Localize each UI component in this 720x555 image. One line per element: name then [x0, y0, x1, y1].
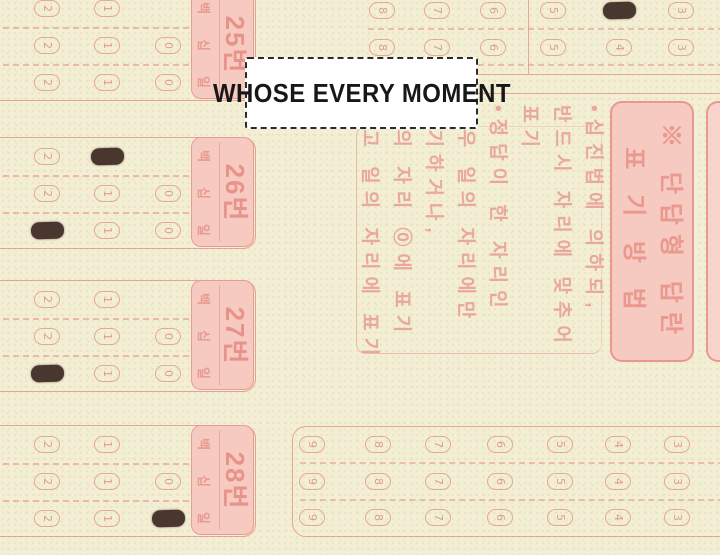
answer-bubble[interactable]: 0: [155, 365, 181, 382]
answer-bubble[interactable]: 7: [425, 436, 451, 453]
answer-block-26: 백십일26번221010: [0, 137, 256, 249]
row-divider: [0, 463, 189, 465]
bubble-digit: 1: [102, 370, 113, 377]
answer-bubble[interactable]: 1: [94, 436, 120, 453]
answer-mark[interactable]: [602, 1, 636, 19]
bubble-digit: 1: [102, 227, 113, 234]
bubble-digit: 3: [676, 7, 687, 14]
digit-place-label: 십: [193, 469, 217, 493]
answer-bubble[interactable]: 5: [540, 39, 566, 56]
bubble-digit: 2: [42, 296, 53, 303]
bubble-digit: 6: [495, 441, 506, 448]
bubble-digit: 6: [488, 7, 499, 14]
bubble-digit: 8: [373, 441, 384, 448]
digit-place-label: 십: [193, 324, 217, 348]
answer-bubble[interactable]: 1: [94, 185, 120, 202]
answer-bubble[interactable]: 6: [487, 436, 513, 453]
answer-bubble[interactable]: 6: [487, 509, 513, 526]
answer-bubble[interactable]: 8: [365, 509, 391, 526]
row-divider: [0, 64, 189, 66]
row-divider: [0, 500, 189, 502]
answer-bubble[interactable]: 4: [605, 473, 631, 490]
bubble-digit: 1: [102, 441, 113, 448]
bubble-digit: 1: [102, 42, 113, 49]
digit-place-label: 백: [193, 144, 217, 168]
bubble-digit: 2: [42, 478, 53, 485]
block-label: 백십일27번: [191, 280, 254, 390]
answer-bubble[interactable]: 0: [155, 222, 181, 239]
digit-place-label: 백: [193, 432, 217, 456]
answer-bubble[interactable]: 4: [606, 39, 632, 56]
bubble-digit: 8: [373, 478, 384, 485]
answer-bubble[interactable]: 2: [34, 510, 60, 527]
bubble-digit: 0: [163, 333, 174, 340]
answer-bubble[interactable]: 2: [34, 148, 60, 165]
answer-block-27: 백십일27번2121010: [0, 280, 256, 392]
answer-block-28: 백십일28번2121021: [0, 425, 256, 537]
answer-mark[interactable]: [30, 221, 64, 239]
bubble-digit: 4: [613, 514, 624, 521]
answer-bubble[interactable]: 2: [34, 291, 60, 308]
row-divider: [0, 27, 189, 29]
answer-bubble[interactable]: 1: [94, 0, 120, 17]
answer-bubble[interactable]: 5: [547, 473, 573, 490]
caption-box: WHOSE EVERY MOMENT: [245, 57, 478, 129]
bubble-digit: 1: [102, 296, 113, 303]
answer-bubble[interactable]: 4: [605, 509, 631, 526]
answer-bubble[interactable]: 8: [369, 2, 395, 19]
bubble-digit: 9: [307, 441, 318, 448]
row-divider: [0, 318, 189, 320]
bubble-digit: 2: [42, 153, 53, 160]
bubble-digit: 7: [433, 441, 444, 448]
answer-bubble[interactable]: 9: [299, 436, 325, 453]
answer-bubble[interactable]: 9: [299, 473, 325, 490]
row-divider: [0, 355, 189, 357]
answer-bubble[interactable]: 1: [94, 74, 120, 91]
digit-place-label: 일: [193, 218, 217, 242]
bubble-digit: 0: [163, 478, 174, 485]
bubble-digit: 9: [307, 514, 318, 521]
question-number-label: 27번: [220, 284, 254, 388]
answer-bubble[interactable]: 8: [365, 436, 391, 453]
answer-bubble[interactable]: 1: [94, 328, 120, 345]
answer-bubble[interactable]: 6: [480, 39, 506, 56]
digit-place-label: 십: [193, 181, 217, 205]
answer-bubble[interactable]: 3: [668, 2, 694, 19]
bubble-digit: 7: [433, 478, 444, 485]
bubble-digit: 3: [676, 44, 687, 51]
bubble-digit: 4: [613, 478, 624, 485]
answer-bubble[interactable]: 1: [94, 510, 120, 527]
block-label: 백십일26번: [191, 137, 254, 247]
bubble-digit: 5: [555, 478, 566, 485]
answer-bubble[interactable]: 2: [34, 185, 60, 202]
digit-place-label: 백: [193, 0, 217, 20]
question-number-label: 28번: [220, 429, 254, 533]
bottom-grid-row-divider: [300, 462, 720, 464]
answer-bubble[interactable]: 1: [94, 37, 120, 54]
bubble-digit: 0: [163, 190, 174, 197]
block-label: 백십일28번: [191, 425, 254, 535]
answer-bubble[interactable]: 2: [34, 473, 60, 490]
answer-bubble[interactable]: 5: [547, 436, 573, 453]
bubble-digit: 1: [102, 5, 113, 12]
caption-text: WHOSE EVERY MOMENT: [213, 78, 511, 109]
bubble-digit: 5: [548, 7, 559, 14]
row-divider: [0, 175, 189, 177]
answer-bubble[interactable]: 2: [34, 0, 60, 17]
answer-bubble[interactable]: 0: [155, 74, 181, 91]
bubble-digit: 5: [555, 514, 566, 521]
bubble-digit: 4: [614, 44, 625, 51]
question-number-label: 26번: [220, 141, 254, 245]
top-grid-row-divider: [368, 28, 720, 30]
answer-bubble[interactable]: 3: [664, 473, 690, 490]
bubble-digit: 5: [555, 441, 566, 448]
bubble-digit: 0: [163, 227, 174, 234]
answer-bubble[interactable]: 8: [365, 473, 391, 490]
bubble-digit: 8: [377, 7, 388, 14]
answer-bubble[interactable]: 1: [94, 365, 120, 382]
answer-bubble[interactable]: 0: [155, 37, 181, 54]
bubble-digit: 2: [42, 79, 53, 86]
answer-bubble[interactable]: 6: [480, 2, 506, 19]
answer-bubble[interactable]: 4: [605, 436, 631, 453]
bubble-digit: 7: [432, 44, 443, 51]
answer-bubble[interactable]: 0: [155, 328, 181, 345]
digit-place-label: 일: [193, 506, 217, 530]
answer-mark[interactable]: [90, 147, 124, 165]
answer-bubble[interactable]: 3: [664, 509, 690, 526]
bubble-digit: 2: [42, 441, 53, 448]
answer-bubble[interactable]: 0: [155, 473, 181, 490]
answer-bubble[interactable]: 5: [540, 2, 566, 19]
bubble-digit: 1: [102, 333, 113, 340]
answer-bubble[interactable]: 2: [34, 328, 60, 345]
answer-mark[interactable]: [30, 364, 64, 382]
bubble-digit: 1: [102, 190, 113, 197]
bubble-digit: 0: [163, 79, 174, 86]
bubble-digit: 9: [307, 478, 318, 485]
bubble-digit: 2: [42, 515, 53, 522]
top-grid-column-divider: [528, 0, 529, 74]
bubble-digit: 1: [102, 478, 113, 485]
marking-instructions-text: •십진법에 의하되, 반드시 자리에 맞추어 표기 •정답이 한 자리인 경우 …: [353, 105, 609, 355]
bubble-digit: 1: [102, 79, 113, 86]
answer-bubble[interactable]: 3: [668, 39, 694, 56]
bubble-digit: 8: [377, 44, 388, 51]
bottom-grid-row-divider: [300, 499, 720, 501]
bubble-digit: 1: [102, 515, 113, 522]
bubble-digit: 3: [672, 514, 683, 521]
answer-bubble[interactable]: 1: [94, 291, 120, 308]
bubble-digit: 7: [432, 7, 443, 14]
answer-mark[interactable]: [151, 509, 185, 527]
answer-bubble[interactable]: 8: [369, 39, 395, 56]
answer-bubble[interactable]: 7: [424, 39, 450, 56]
bubble-digit: 3: [672, 478, 683, 485]
bubble-digit: 6: [495, 478, 506, 485]
answer-bubble[interactable]: 7: [425, 473, 451, 490]
answer-bubble[interactable]: 1: [94, 473, 120, 490]
omr-answer-sheet: 백십일25번21210210백십일26번221010백십일27번2121010백…: [0, 0, 720, 555]
answer-bubble[interactable]: 7: [425, 509, 451, 526]
digit-place-label: 일: [193, 361, 217, 385]
bubble-digit: 0: [163, 42, 174, 49]
partial-guide-box: [706, 101, 720, 362]
bubble-digit: 5: [548, 44, 559, 51]
marking-guide-title-text: ※ 단답형 답란 표 기 방 법: [615, 113, 689, 353]
bubble-digit: 2: [42, 5, 53, 12]
bubble-digit: 2: [42, 190, 53, 197]
bubble-digit: 2: [42, 333, 53, 340]
bubble-digit: 3: [672, 441, 683, 448]
answer-bubble[interactable]: 2: [34, 37, 60, 54]
digit-place-label: 백: [193, 287, 217, 311]
answer-bubble[interactable]: 3: [664, 436, 690, 453]
bubble-digit: 0: [163, 370, 174, 377]
answer-bubble[interactable]: 6: [487, 473, 513, 490]
answer-bubble[interactable]: 9: [299, 509, 325, 526]
answer-bubble[interactable]: 1: [94, 222, 120, 239]
answer-bubble[interactable]: 5: [547, 509, 573, 526]
bubble-digit: 6: [495, 514, 506, 521]
bubble-digit: 6: [488, 44, 499, 51]
answer-bubble[interactable]: 0: [155, 185, 181, 202]
digit-place-label: 십: [193, 33, 217, 57]
row-divider: [0, 212, 189, 214]
bubble-digit: 7: [433, 514, 444, 521]
bubble-digit: 2: [42, 42, 53, 49]
bubble-digit: 4: [613, 441, 624, 448]
answer-bubble[interactable]: 2: [34, 436, 60, 453]
bubble-digit: 8: [373, 514, 384, 521]
answer-bubble[interactable]: 7: [424, 2, 450, 19]
answer-bubble[interactable]: 2: [34, 74, 60, 91]
